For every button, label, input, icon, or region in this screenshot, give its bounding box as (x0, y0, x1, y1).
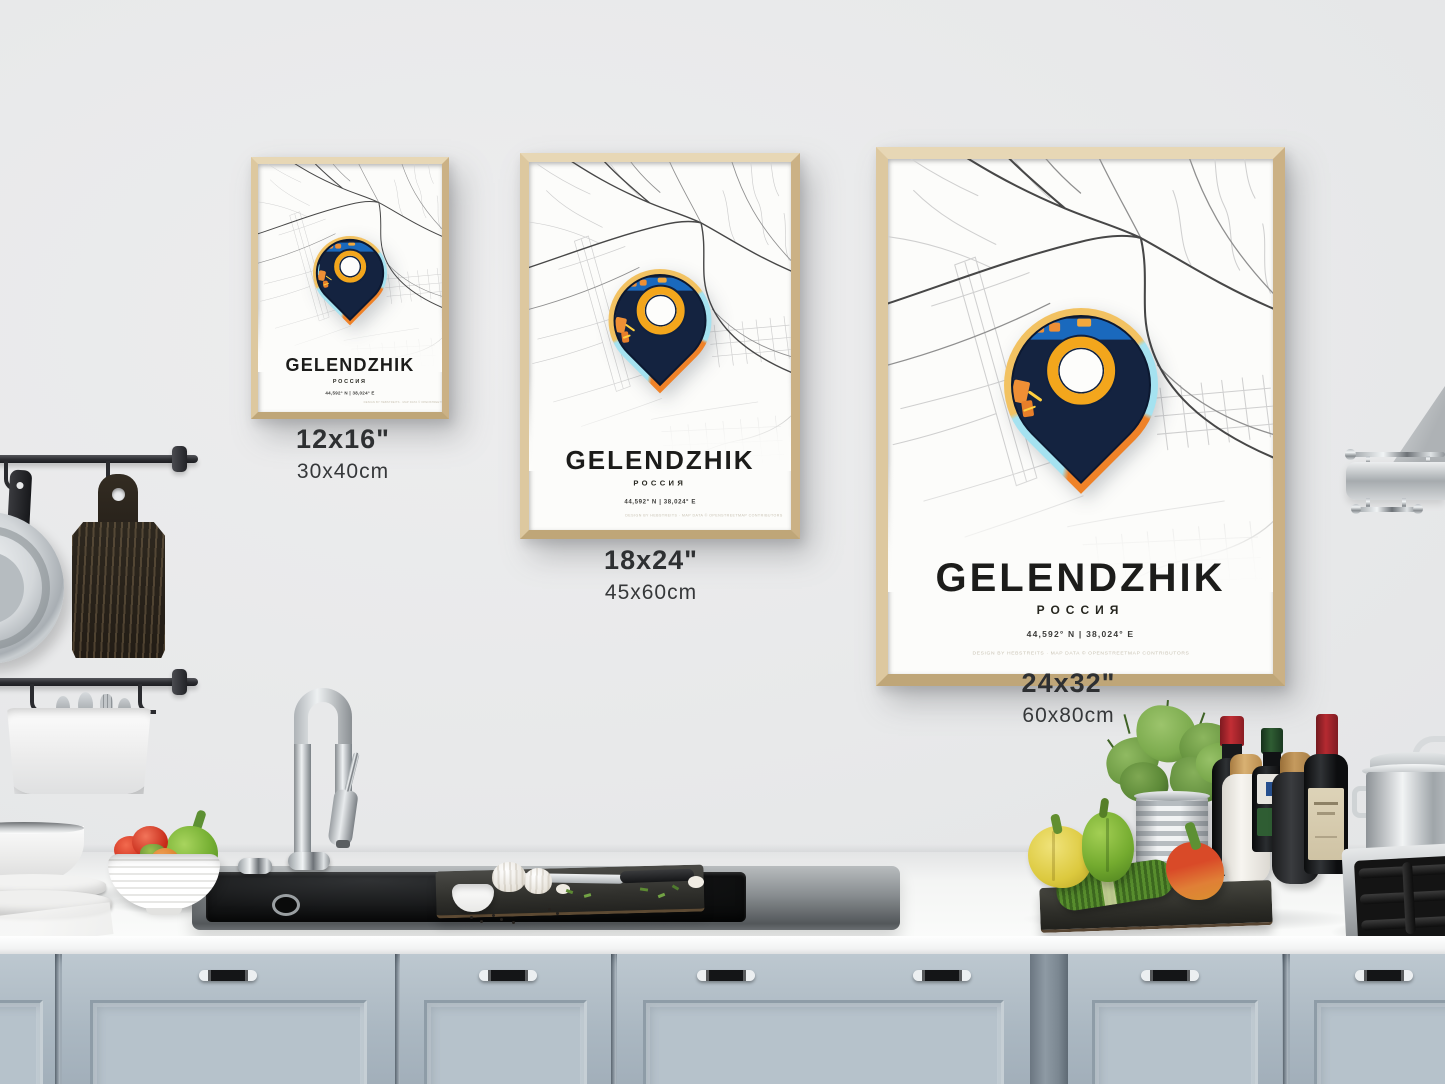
hood-rail-ball (1413, 504, 1423, 514)
poster-coordinates: 44,592° N | 38,024° E (258, 391, 442, 399)
cabinet-door (400, 954, 611, 1084)
size-label-18x24: 18x24" 45x60cm (520, 545, 782, 605)
hanging-cutting-board (70, 474, 166, 660)
pepper-crease (1106, 818, 1109, 873)
cabinet-panel (1314, 1000, 1445, 1084)
hood-rail-ball (1351, 504, 1361, 514)
map-pin (1004, 308, 1158, 494)
cabinet-seam (1283, 954, 1288, 1084)
range-hood (1340, 386, 1445, 526)
map-pin (313, 236, 387, 326)
label-text-line (1317, 812, 1335, 815)
pepper-crease (1052, 831, 1055, 881)
pin-body (302, 225, 397, 320)
map-poster-medium: GELENDZHIK РОССИЯ 44,592° N | 38,024° E … (520, 153, 800, 539)
hood-top-rail (1350, 452, 1445, 457)
green-bell-pepper (1082, 812, 1134, 882)
poster-art: GELENDZHIK РОССИЯ 44,592° N | 38,024° E … (529, 162, 791, 530)
cabinet-wide-drawer (617, 954, 1030, 1084)
poster-title: GELENDZHIK (258, 356, 442, 374)
pepper-stalk (1099, 798, 1110, 819)
size-inches: 18x24" (520, 545, 782, 576)
shore-sliver (315, 264, 319, 276)
garlic-bulb (524, 868, 552, 894)
cabinet-panel (90, 1000, 367, 1084)
cabinet-handle (1141, 970, 1199, 981)
wine-capsule (1316, 714, 1338, 758)
pin-map-details (313, 236, 388, 311)
poster-credit: DESIGN BY HEBSTREITS · MAP DATA © OPENST… (888, 651, 1273, 659)
building-patch (622, 277, 636, 285)
sink-drain (272, 894, 300, 916)
faucet-spout-head (327, 789, 359, 848)
knife-handle (620, 869, 694, 884)
size-inches: 24x32" (876, 668, 1261, 699)
poster-subtitle: РОССИЯ (258, 379, 442, 387)
pin-border (587, 247, 733, 393)
building-patch (639, 279, 646, 285)
grate-bar (1361, 915, 1445, 930)
garlic-bulb (492, 862, 526, 892)
cabinet-door (1290, 954, 1445, 1084)
cabinet-door (1068, 954, 1282, 1084)
poster-title: GELENDZHIK (888, 558, 1273, 598)
poster-subtitle: РОССИЯ (888, 604, 1273, 616)
label-text-line (1315, 836, 1337, 838)
peppercorn (512, 921, 515, 924)
hood-rail-ball (1345, 449, 1356, 460)
size-inches: 12x16" (251, 424, 435, 455)
cabinet-seam (611, 954, 616, 1084)
gas-stove (1340, 730, 1445, 950)
cabinet-seam (55, 954, 60, 1084)
shore-sliver (1006, 411, 1019, 430)
pin-body (594, 254, 727, 387)
faucet-aerator (336, 840, 350, 848)
rail-bracket (172, 669, 187, 695)
pin-ring (334, 250, 366, 282)
peppercorn (470, 916, 473, 919)
stove-grate (1354, 855, 1445, 943)
hood-lower-rail (1356, 507, 1416, 512)
pan-body (0, 512, 64, 664)
peppercorn (556, 912, 559, 915)
vegetable-bowl (108, 806, 224, 914)
cabinet-handle (199, 970, 257, 981)
building-patch (1048, 323, 1059, 333)
cabinet-panel (0, 1000, 43, 1084)
building-patch (1076, 319, 1090, 327)
pin-map-details (1000, 305, 1161, 466)
bowl-foot (146, 908, 182, 915)
size-cm: 45x60cm (520, 581, 782, 605)
building-patch (323, 243, 333, 249)
garlic-prep-board (436, 852, 716, 932)
cabinet-handle (1355, 970, 1413, 981)
hood-band (1346, 462, 1445, 500)
cabinet-panel (643, 1000, 1004, 1084)
pin-body (981, 286, 1179, 484)
plant-stem (1123, 714, 1130, 734)
counter-front-edge (0, 936, 1445, 954)
pin-border (298, 221, 403, 326)
poster-credit: DESIGN BY HEBSTREITS · MAP DATA © OPENST… (258, 401, 442, 409)
rail-bracket (172, 446, 187, 472)
map-poster-large: GELENDZHIK РОССИЯ 44,592° N | 38,024° E … (876, 147, 1285, 686)
poster-subtitle: РОССИЯ (529, 480, 791, 488)
building-patch (1023, 320, 1044, 333)
pin-ring (1047, 337, 1115, 405)
hanging-pan (0, 468, 80, 668)
cabinet-handle (479, 970, 537, 981)
grate-bar (1360, 889, 1445, 904)
wine-label (1308, 788, 1344, 860)
cabinet-gap (1030, 954, 1068, 1084)
peppercorn (500, 918, 503, 921)
poster-art: GELENDZHIK РОССИЯ 44,592° N | 38,024° E … (258, 164, 442, 412)
size-label-12x16: 12x16" 30x40cm (251, 424, 435, 484)
poster-title: GELENDZHIK (529, 447, 791, 473)
caddy-body (4, 708, 154, 794)
utensil-caddy (4, 694, 156, 796)
cabinet-handle (697, 970, 755, 981)
poster-coordinates: 44,592° N | 38,024° E (888, 630, 1273, 639)
bottle-cap (1220, 716, 1244, 746)
bottle-cap (1261, 728, 1283, 754)
peppercorn (548, 908, 551, 911)
garlic-clove (688, 876, 704, 888)
building-patch (657, 277, 667, 282)
cabinet-panel (1092, 1000, 1258, 1084)
pin-border (972, 276, 1190, 494)
cabinet-door (62, 954, 395, 1084)
faucet (288, 686, 368, 876)
pin-map-details (607, 267, 713, 373)
cabinet-handle (913, 970, 971, 981)
sink-control-knob (238, 858, 272, 874)
cabinet-panel (424, 1000, 587, 1084)
peppercorn (480, 920, 483, 923)
pan-handle-hole (16, 482, 23, 489)
board-hole (112, 488, 125, 501)
can-rim (1134, 791, 1210, 801)
bowl-rim (0, 822, 84, 834)
size-cm: 30x40cm (251, 460, 435, 484)
label-text-line (1314, 802, 1338, 805)
board-body (72, 522, 165, 658)
poster-art: GELENDZHIK РОССИЯ 44,592° N | 38,024° E … (888, 159, 1273, 674)
poster-coordinates: 44,592° N | 38,024° E (529, 499, 791, 507)
faucet-base (288, 852, 330, 870)
wall-rail-top (0, 455, 198, 463)
map-pin (609, 269, 712, 394)
map-poster-small: GELENDZHIK РОССИЯ 44,592° N | 38,024° E … (251, 157, 449, 419)
faucet-riser (294, 744, 311, 854)
building-patch (335, 244, 340, 248)
pin-ring (636, 287, 684, 335)
cabinet-door (0, 954, 55, 1084)
peppercorn (492, 914, 495, 917)
bowl-body (108, 854, 220, 910)
poster-credit: DESIGN BY HEBSTREITS · MAP DATA © OPENST… (529, 514, 791, 522)
faucet-arch-cut (308, 702, 338, 752)
kitchen-product-photo-scene: GELENDZHIK РОССИЯ 44,592° N | 38,024° E … (0, 0, 1445, 1084)
building-patch (348, 242, 355, 246)
pier-line (624, 324, 634, 332)
